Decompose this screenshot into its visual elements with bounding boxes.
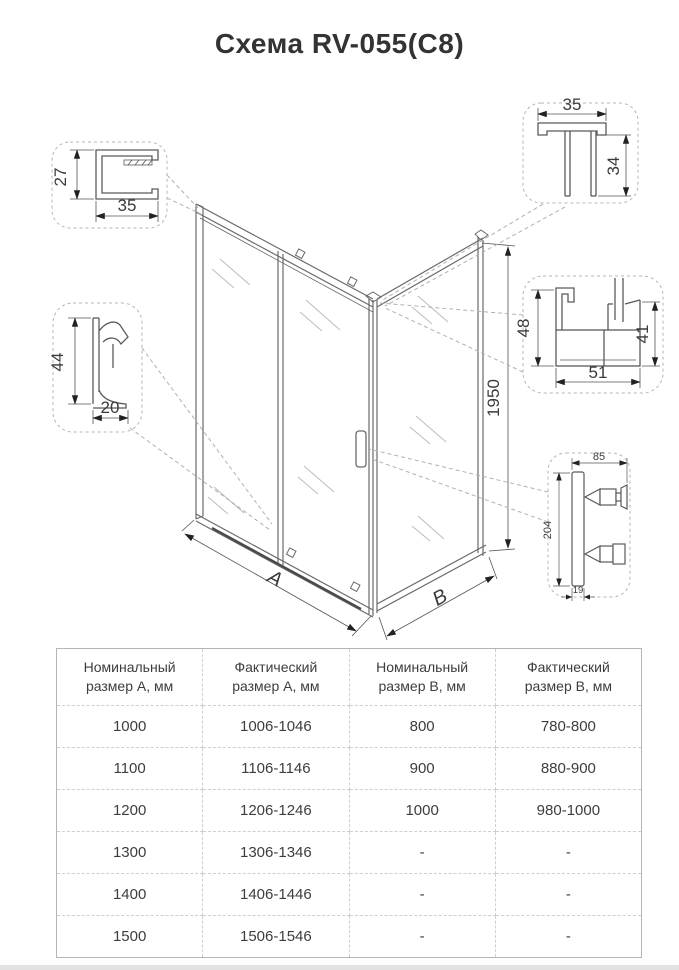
dim-sill-left: 48 — [514, 319, 533, 338]
header-actual-a: Фактический размер A, мм — [203, 649, 349, 706]
side-panel — [377, 230, 488, 611]
wall-profile-section — [96, 150, 158, 199]
table-cell: 1100 — [57, 748, 203, 790]
table-header-row: Номинальный размер A, мм Фактический раз… — [57, 649, 642, 706]
wall-profile-seal — [124, 160, 152, 165]
header-actual-b: Фактический размер B, мм — [495, 649, 641, 706]
callout-threshold-profile: 44 20 — [48, 303, 272, 530]
dim-handle-width: 85 — [593, 451, 605, 463]
handle-section — [572, 472, 627, 586]
glass-marks — [208, 259, 448, 541]
table-cell: 980-1000 — [495, 790, 641, 832]
table-row: 1200 1206-1246 1000 980-1000 — [57, 790, 642, 832]
corner-post — [366, 292, 381, 616]
dim-handle-depth: 19 — [573, 585, 584, 596]
table-cell: 1406-1446 — [203, 874, 349, 916]
header-nominal-a: Номинальный размер A, мм — [57, 649, 203, 706]
table-row: 1000 1006-1046 800 780-800 — [57, 706, 642, 748]
scheme-drawing: 1950 A B — [0, 0, 679, 646]
bottom-rail — [196, 514, 373, 617]
table-cell: - — [349, 916, 495, 958]
enclosure-drawing — [196, 204, 488, 617]
dim-wall-width: 35 — [118, 196, 137, 215]
table-cell: 780-800 — [495, 706, 641, 748]
dim-top-width: 35 — [563, 95, 582, 114]
top-profile-section — [538, 123, 606, 196]
dim-top-height: 34 — [604, 157, 623, 176]
dim-sill-right: 41 — [633, 325, 652, 344]
door-edge — [278, 251, 283, 566]
table-cell: 1206-1246 — [203, 790, 349, 832]
size-table: Номинальный размер A, мм Фактический раз… — [56, 648, 642, 958]
dim-height-label: 1950 — [484, 379, 503, 417]
table-cell: - — [495, 874, 641, 916]
door-handle — [356, 431, 366, 467]
callout-wall-profile: 27 35 — [51, 142, 203, 228]
table-cell: 1106-1146 — [203, 748, 349, 790]
dim-handle-height: 204 — [542, 521, 554, 539]
table-row: 1100 1106-1146 900 880-900 — [57, 748, 642, 790]
table-cell: 900 — [349, 748, 495, 790]
table-cell: - — [349, 874, 495, 916]
dim-threshold-width: 20 — [101, 398, 120, 417]
table-row: 1300 1306-1346 - - — [57, 832, 642, 874]
table-cell: - — [495, 916, 641, 958]
left-wall-profile — [196, 204, 203, 519]
sill-section — [556, 278, 640, 366]
page-bottom-strip — [0, 965, 679, 970]
header-nominal-b: Номинальный размер B, мм — [349, 649, 495, 706]
dim-a-label: A — [263, 565, 286, 591]
table-cell: - — [495, 832, 641, 874]
table-cell: 880-900 — [495, 748, 641, 790]
door-rollers — [286, 249, 359, 591]
callout-handle: 85 204 19 — [369, 449, 630, 601]
table-row: 1400 1406-1446 - - — [57, 874, 642, 916]
table-cell: 1000 — [349, 790, 495, 832]
threshold-section — [93, 318, 128, 408]
table-cell: - — [349, 832, 495, 874]
table-cell: 1006-1046 — [203, 706, 349, 748]
table-cell: 1300 — [57, 832, 203, 874]
top-rail — [196, 204, 373, 312]
table-cell: 1000 — [57, 706, 203, 748]
dim-sill-bottom: 51 — [589, 363, 608, 382]
table-cell: 1400 — [57, 874, 203, 916]
table-cell: 1506-1546 — [203, 916, 349, 958]
callout-sill-profile: 48 51 41 — [380, 276, 663, 393]
table-cell: 800 — [349, 706, 495, 748]
table-cell: 1500 — [57, 916, 203, 958]
dim-threshold-height: 44 — [48, 353, 67, 372]
dim-wall-height: 27 — [51, 168, 70, 187]
dim-b-label: B — [429, 585, 451, 611]
table-cell: 1306-1346 — [203, 832, 349, 874]
table-cell: 1200 — [57, 790, 203, 832]
table-row: 1500 1506-1546 - - — [57, 916, 642, 958]
scheme-page: Схема RV-055(C8) — [0, 0, 679, 970]
